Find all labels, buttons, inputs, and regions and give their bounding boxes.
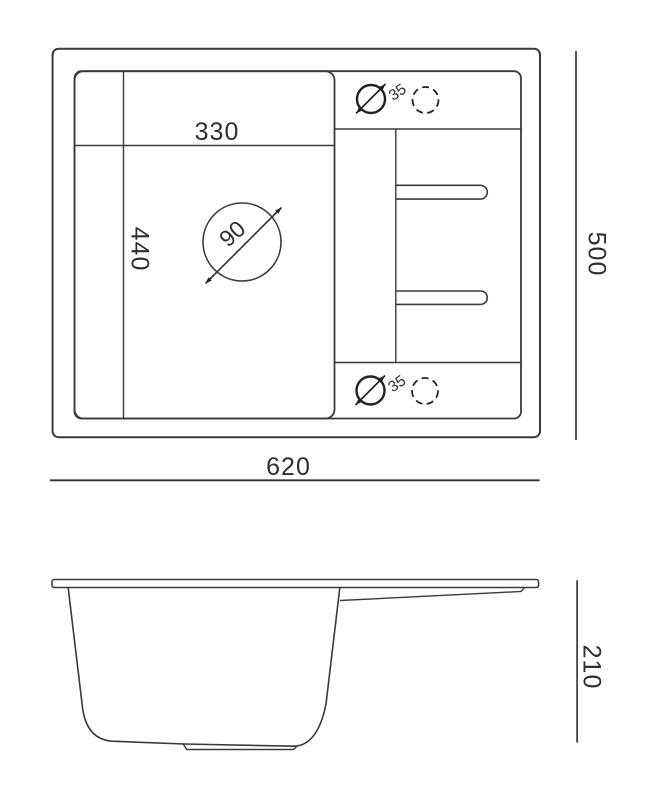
svg-text:35: 35 <box>386 81 410 105</box>
svg-text:500: 500 <box>582 232 610 277</box>
svg-text:35: 35 <box>385 372 409 396</box>
svg-text:330: 330 <box>195 118 240 146</box>
svg-text:620: 620 <box>266 453 311 481</box>
svg-text:90: 90 <box>214 215 250 251</box>
svg-text:210: 210 <box>577 645 605 690</box>
svg-text:440: 440 <box>125 227 153 272</box>
